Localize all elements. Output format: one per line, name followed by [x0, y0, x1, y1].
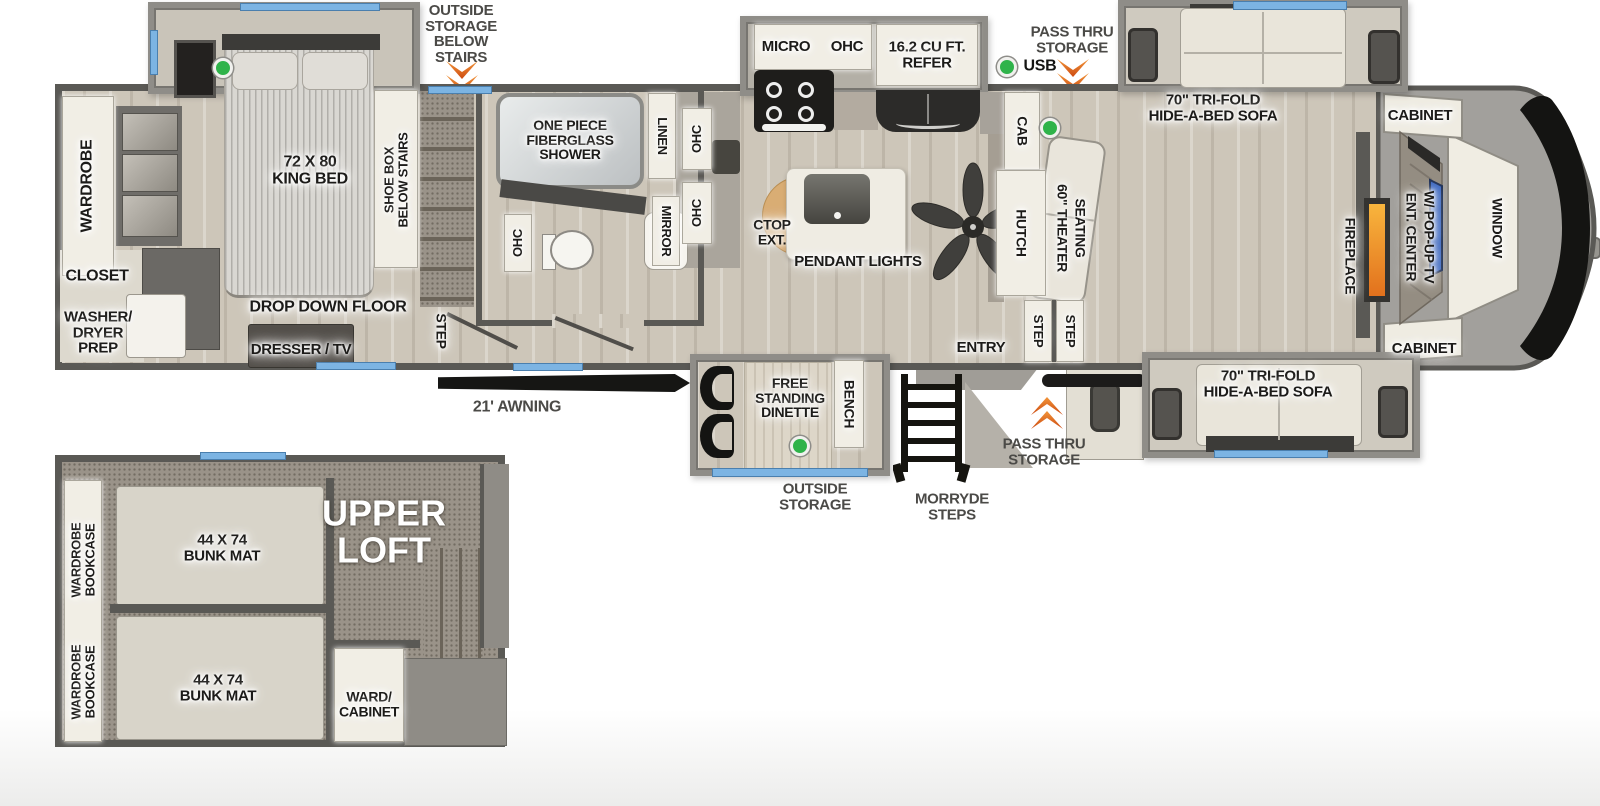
bedroom-slide-window-left	[150, 30, 158, 75]
drawer-front	[122, 195, 178, 237]
bench-label: BENCH	[842, 380, 857, 428]
micro-label: MICRO	[762, 39, 811, 55]
loft-platform	[404, 658, 507, 746]
mirror-label: MIRROR	[659, 206, 673, 257]
linen-label: LINEN	[655, 117, 669, 155]
entry-label: ENTRY	[957, 340, 1006, 356]
bedroom-slide-window-top	[240, 3, 380, 11]
kitchen-ohc-1-label: OHC	[690, 125, 704, 153]
bed-headboard	[222, 34, 380, 50]
floorplan-canvas: 72 X 80 KING BED SHOE BOX BELOW STAIRS S…	[0, 0, 1600, 806]
loft-divider-wall	[110, 604, 332, 613]
pass-thru-bottom-label: PASS THRU STORAGE	[1003, 436, 1086, 467]
fireplace-insert	[1369, 204, 1385, 296]
theater-label-1: 60" THEATER	[1055, 184, 1070, 272]
hutch-label: HUTCH	[1014, 209, 1029, 257]
pillow	[232, 52, 298, 90]
compartment-window	[1090, 382, 1120, 432]
step-label-bedroom: STEP	[434, 313, 449, 348]
slide-window	[1152, 388, 1182, 440]
drop-down-floor-label: DROP DOWN FLOOR	[250, 300, 407, 317]
peninsula-sink	[712, 140, 740, 174]
closet-label: CLOSET	[65, 269, 128, 286]
step-label-1: STEP	[1031, 315, 1045, 348]
drawer-front	[122, 154, 178, 192]
wardrobe-label: WARDROBE	[80, 140, 97, 233]
outside-storage-bottom-label: OUTSIDE STORAGE	[779, 481, 851, 512]
sofa-top-seam-h	[1184, 52, 1342, 54]
slide-window	[1378, 386, 1408, 438]
kitchen-ohc-2-label: OHC	[690, 199, 704, 227]
kitchen-ohc-upper-label: OHC	[831, 39, 863, 55]
loft-right-wall-block	[480, 464, 509, 648]
front-window-bench	[1448, 134, 1518, 322]
usb-dot-bedroom	[213, 58, 233, 78]
oven-handle	[762, 124, 826, 131]
sofa-top-seam-v	[1262, 12, 1264, 84]
usb-dot-dinette	[790, 436, 810, 456]
fireplace-label: FIREPLACE	[1343, 218, 1358, 295]
slide-window	[1128, 28, 1158, 82]
slide-window	[1368, 30, 1400, 84]
awning-label: 21' AWNING	[473, 400, 561, 417]
cab-label: CAB	[1015, 116, 1030, 145]
usb-label: USB	[1024, 59, 1057, 76]
loft-window	[200, 452, 286, 460]
entry-step-divider	[1052, 300, 1056, 362]
window-label: WINDOW	[1490, 198, 1505, 258]
ctop-ext-label: CTOP EXT.	[753, 217, 790, 246]
outside-storage-below-stairs-label: OUTSIDE STORAGE BELOW STAIRS	[425, 3, 497, 65]
drawer-front	[122, 113, 178, 151]
washer-dryer-label: WASHER/ DRYER PREP	[64, 310, 132, 357]
burner	[798, 106, 814, 122]
ward-cabinet-label: WARD/ CABINET	[339, 689, 399, 718]
bunk-mat-top-label: 44 X 74 BUNK MAT	[184, 532, 260, 563]
kitchen-counter	[834, 92, 878, 130]
burner	[766, 82, 782, 98]
bedroom-bottom-window	[316, 362, 396, 370]
upper-loft-title: UPPER LOFT	[322, 495, 446, 570]
shoe-box-label: SHOE BOX BELOW STAIRS	[382, 132, 409, 227]
sofa-top-label: 70" TRI-FOLD HIDE-A-BED SOFA	[1149, 92, 1278, 123]
chevron-up-icon	[1028, 396, 1066, 430]
step-label-2: STEP	[1063, 315, 1077, 348]
dinette-window	[712, 468, 868, 477]
compartment-trim	[1042, 374, 1146, 387]
usb-dot-living	[1040, 118, 1060, 138]
usb-dot-kitchen	[997, 57, 1017, 77]
cooktop	[754, 70, 834, 132]
counter-right	[980, 92, 1004, 134]
cabinet-top-label: CABINET	[1388, 108, 1453, 124]
ent-center-label-1: ENT. CENTER	[1404, 193, 1419, 282]
pendant-lights-label: PENDANT LIGHTS	[794, 254, 921, 270]
bedroom-stairs	[420, 91, 474, 307]
wardrobe-bookcase-bottom-label: WARDROBE BOOKCASE	[69, 645, 96, 720]
bath-bottom-window	[513, 363, 583, 371]
sofa-top-slide-window-strip	[1233, 1, 1347, 10]
dinette-chair-seat	[712, 374, 732, 402]
toilet	[550, 230, 594, 270]
morryde-steps-label: MORRYDE STEPS	[915, 491, 989, 522]
theater-label-2: SEATING	[1073, 198, 1088, 257]
refer-label: 16.2 CU FT. REFER	[889, 39, 966, 70]
top-wall-window	[428, 86, 492, 94]
pillow	[302, 52, 368, 90]
fridge-handle	[896, 118, 960, 129]
burner	[798, 82, 814, 98]
bedroom-tv	[174, 40, 216, 98]
sofa-bottom-slide-window-strip	[1214, 450, 1328, 458]
faucet	[834, 212, 841, 219]
cabinet-bottom-label: CABINET	[1392, 341, 1457, 357]
awning-bar	[438, 374, 690, 392]
ent-center-label-2: W/ POP-UP TV	[1422, 191, 1437, 284]
loft-ward-wall	[334, 640, 420, 648]
bathroom-ohc-label: OHC	[511, 229, 525, 257]
wardrobe-bookcase-top-label: WARDROBE BOOKCASE	[69, 523, 96, 598]
king-bed-label: 72 X 80 KING BED	[272, 154, 348, 187]
pass-thru-top-label: PASS THRU STORAGE	[1031, 24, 1114, 55]
sofa-bottom-label: 70" TRI-FOLD HIDE-A-BED SOFA	[1204, 368, 1333, 399]
dinette-label: FREE STANDING DINETTE	[755, 376, 825, 420]
burner	[766, 106, 782, 122]
bunk-mat-bottom-label: 44 X 74 BUNK MAT	[180, 672, 256, 703]
washer-unit	[126, 294, 186, 358]
dresser-tv-label: DRESSER / TV	[251, 342, 352, 358]
dinette-chair-seat	[712, 422, 732, 450]
shower-label: ONE PIECE FIBERGLASS SHOWER	[526, 118, 613, 162]
